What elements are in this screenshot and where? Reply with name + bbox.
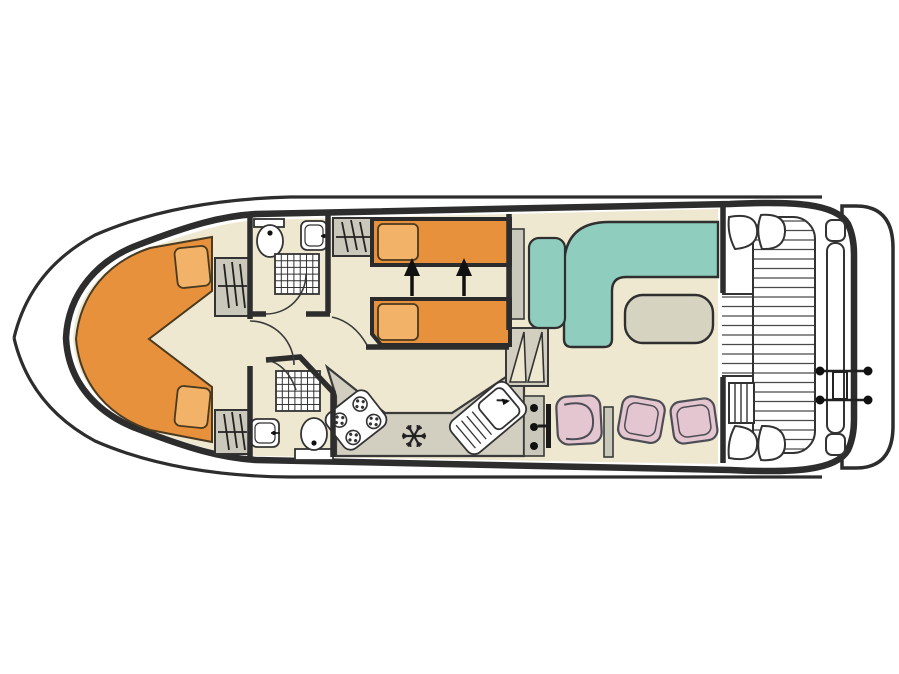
rail-post xyxy=(816,396,825,405)
bed-pillow xyxy=(378,224,418,260)
helm xyxy=(538,395,719,448)
wardrobe-mid-cabin xyxy=(333,218,373,256)
steering-wheel-icon xyxy=(546,404,551,448)
deck-bench-cushion xyxy=(758,215,785,249)
bed-pillow xyxy=(174,245,211,288)
stern-locker xyxy=(826,434,845,455)
wardrobe-bow-top xyxy=(215,258,250,316)
stern-side-step xyxy=(827,243,844,433)
bed-pillow xyxy=(174,385,211,428)
stern-locker xyxy=(826,220,845,241)
helm-seat xyxy=(556,395,602,445)
wardrobe-bow-bottom xyxy=(215,410,250,454)
boat-deck-plan xyxy=(0,0,899,674)
helm-partition xyxy=(604,407,613,457)
toilet-icon xyxy=(257,225,283,257)
deck-bench-cushion xyxy=(758,426,785,460)
rail-post xyxy=(864,367,873,376)
rail-post xyxy=(864,396,873,405)
boarding-ladder-icon xyxy=(729,383,754,423)
shower-icon xyxy=(275,254,319,294)
stool xyxy=(669,397,718,445)
plan-canvas xyxy=(0,0,899,674)
stool xyxy=(616,395,666,445)
salon-sideboard xyxy=(511,229,524,319)
bed-pillow xyxy=(378,304,418,340)
salon-armchair xyxy=(529,238,565,328)
shower-icon xyxy=(276,371,320,411)
salon-table xyxy=(625,295,713,343)
hanging-locker xyxy=(506,328,548,386)
rail-post xyxy=(816,367,825,376)
